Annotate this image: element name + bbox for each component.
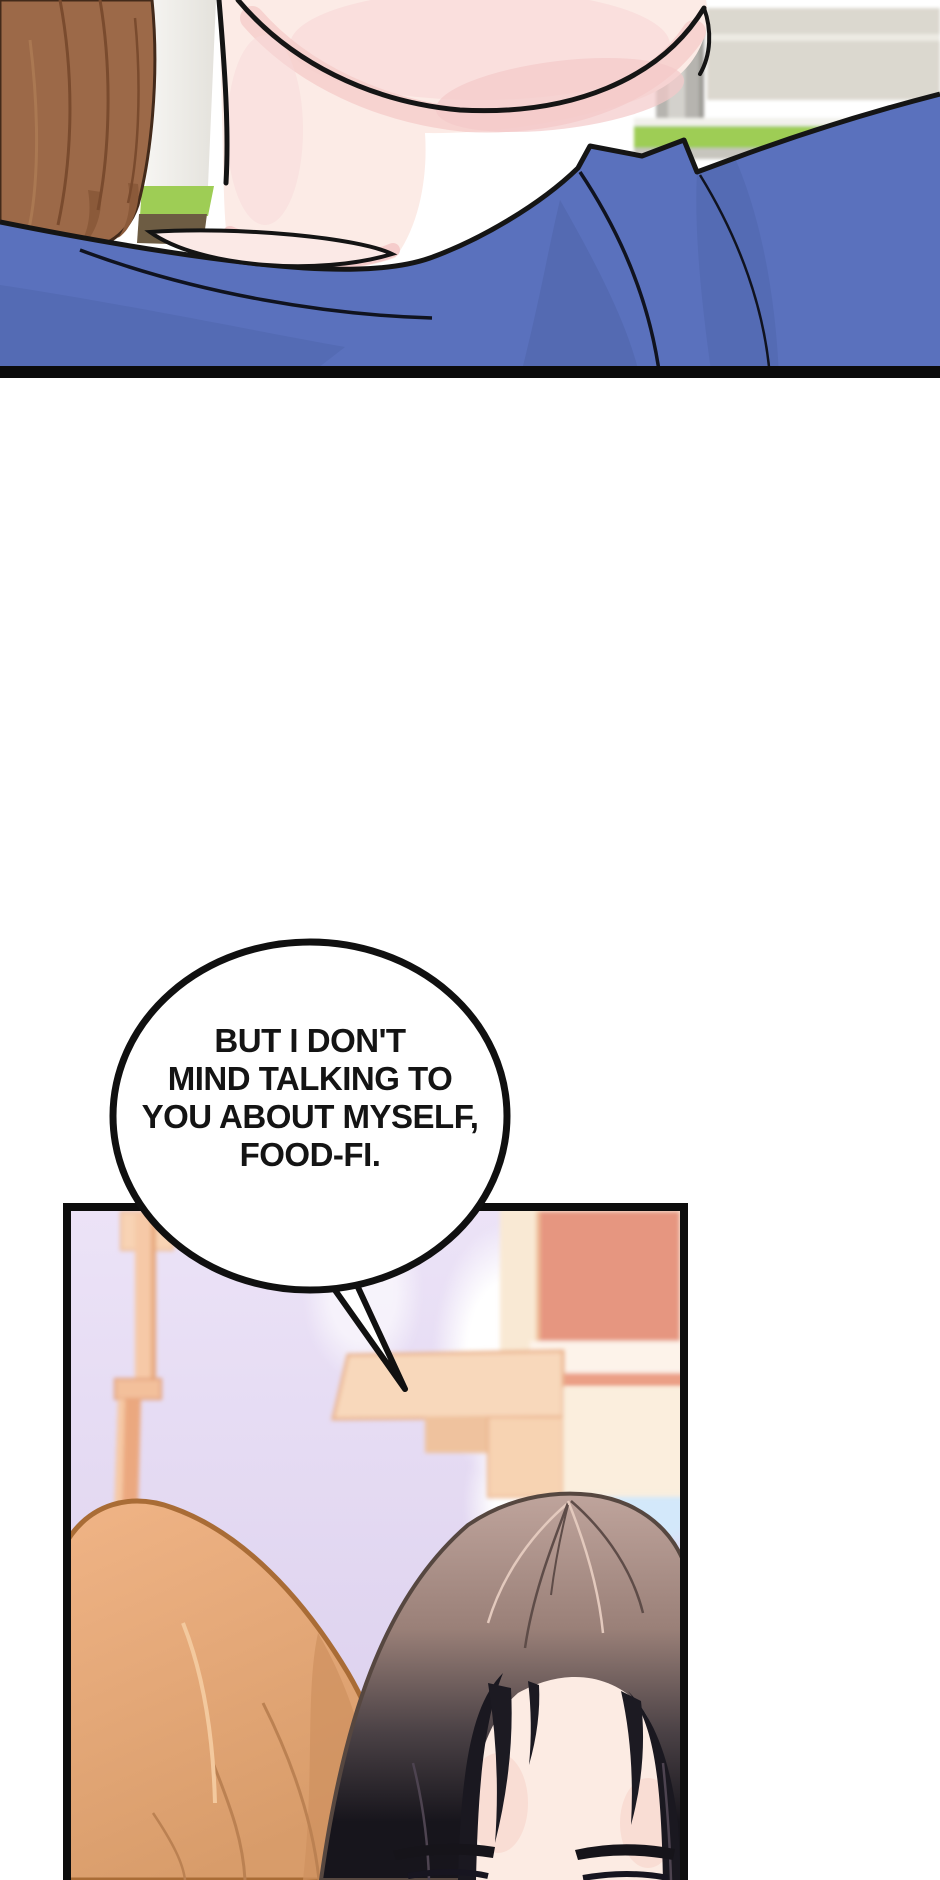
- speech-line-2: MIND TALKING TO: [130, 1060, 490, 1098]
- top-panel-border: [0, 366, 940, 378]
- salmon-window: [540, 1211, 680, 1341]
- grass-strip-left: [140, 186, 214, 216]
- speech-line-1: BUT I DON'T: [130, 1022, 490, 1060]
- top-panel-hair: [0, 0, 155, 251]
- speech-bubble-text: BUT I DON'T MIND TALKING TO YOU ABOUT MY…: [130, 1022, 490, 1174]
- speech-line-4: FOOD-FI.: [130, 1136, 490, 1174]
- speech-line-3: YOU ABOUT MYSELF,: [130, 1098, 490, 1136]
- top-panel-illustration: [0, 0, 940, 378]
- comic-page: BUT I DON'T MIND TALKING TO YOU ABOUT MY…: [0, 0, 940, 1880]
